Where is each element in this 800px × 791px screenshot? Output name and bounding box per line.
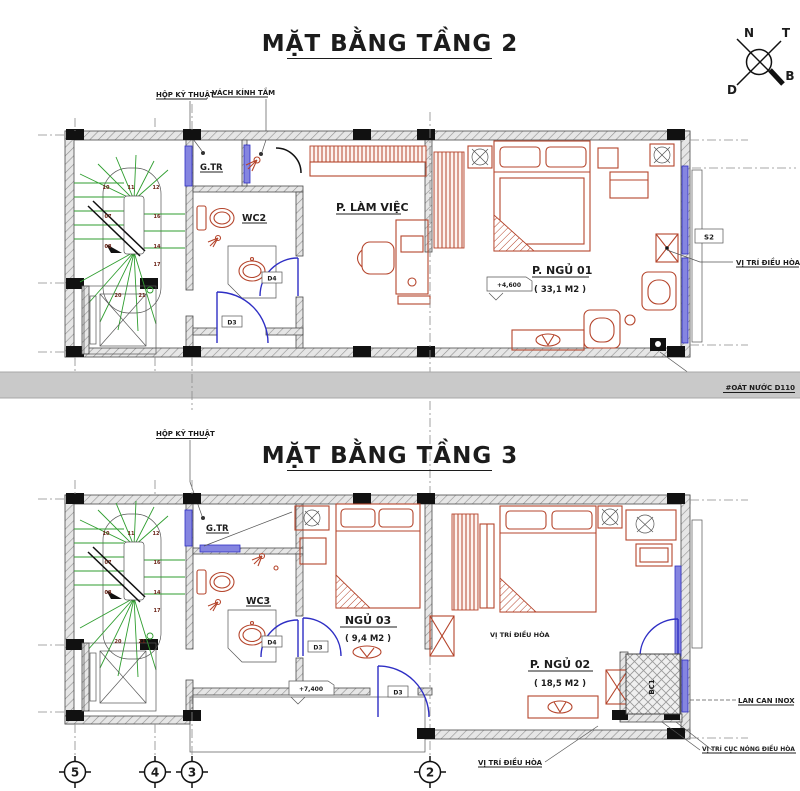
floor3-plan: HỘP KỸ THUẬT MẶT BẰNG TẦNG 3 [38, 357, 796, 767]
compass-b: B [785, 69, 794, 83]
door-label-d3: D3 [227, 320, 236, 327]
compass-n: N [744, 26, 754, 40]
stair-step-number: 11 [128, 531, 135, 537]
floor2-room-lam-viec: P. LÀM VIỆC [336, 201, 409, 214]
railing-label: LAN CAN INOX [738, 697, 795, 705]
stair-step-number: 17 [154, 262, 161, 268]
stair-step-number: 10 [103, 185, 110, 191]
door-label-d3-front: D3 [393, 690, 402, 697]
structural-columns [66, 129, 685, 357]
stair-step-number: 07 [105, 214, 112, 220]
floor2-ac-label: VỊ TRÍ ĐIỀU HÒA [736, 257, 800, 267]
floor2-callout-vach-kinh-tam: VÁCH KÍNH TẮM [212, 87, 275, 97]
door-d3-floor3: D3 [303, 618, 341, 656]
grid-bubble-3: 3 [176, 756, 208, 788]
floor3-level-text: +7,400 [299, 686, 323, 693]
section-band: #OÁT NƯỚC D110 [0, 372, 800, 398]
window-gtr-floor3 [185, 510, 192, 546]
floor3-room-ngu02-area: ( 18,5 M2 ) [534, 679, 586, 689]
door-d3-floor2: D3 [217, 292, 268, 343]
balcony-railing-outline [692, 170, 702, 342]
shower-fixture [246, 148, 301, 173]
floor3-ac-outdoor-label: VỊ TRÍ CỤC NÓNG ĐIỀU HÒA [702, 744, 795, 753]
window-wc3 [200, 545, 240, 552]
grid-bubble-label: 5 [71, 766, 79, 780]
grid-bubble-label: 3 [188, 766, 196, 780]
compass-t: T [782, 26, 791, 40]
floor2-level-text: +4,600 [497, 282, 521, 289]
compass-d: D [727, 83, 737, 97]
balcony-bc1: BC1 [626, 654, 680, 714]
stair-step-number: 07 [105, 560, 112, 566]
stair-step-number: 08 [105, 244, 112, 250]
grid-bubble-label: 2 [426, 766, 434, 780]
stair-step-number: 11 [128, 185, 135, 191]
floor2-room-ngu01-area: ( 33,1 M2 ) [534, 285, 586, 295]
balcony-tag: BC1 [648, 679, 656, 694]
window-gtr [185, 146, 192, 186]
stair-step-number: 20 [115, 639, 122, 645]
compass-icon: N T D B [727, 26, 795, 97]
window-right-lower [682, 258, 688, 343]
stair-step-number: 12 [153, 531, 160, 537]
blueprint-canvas: MẶT BẰNG TẦNG 2 HỘP KỸ THUẬT VÁCH KÍNH T… [0, 0, 800, 791]
stair-step-number: 08 [105, 590, 112, 596]
floor2-room-ngu01: P. NGỦ 01 [532, 263, 592, 277]
floor3-ac-label-mid: VỊ TRÍ ĐIỀU HÒA [490, 629, 550, 639]
floor3-room-gtr: G.TR [206, 524, 229, 534]
floor3-room-ngu03: NGỦ 03 [345, 613, 391, 627]
window-right-upper [682, 166, 688, 254]
stair-step-number: 20 [115, 293, 122, 299]
grid-bubble-4: 4 [139, 756, 171, 788]
floor2-callout-hop-ky-thuat: HỘP KỸ THUẬT [156, 90, 215, 99]
bedroom1-furniture [468, 141, 676, 350]
door-balcony [640, 619, 678, 657]
stair-step-number: 12 [153, 185, 160, 191]
grid-bubbles: 5 4 3 2 [59, 756, 446, 788]
floor3-room-ngu03-area: ( 9,4 M2 ) [345, 634, 391, 644]
grid-bubble-label: 4 [151, 766, 159, 780]
stair-step-number: 17 [154, 608, 161, 614]
terrace-outline [190, 697, 425, 752]
floor3-room-wc3: WC3 [246, 596, 270, 607]
stair-step-number: 16 [154, 560, 161, 566]
stair-step-number: 14 [154, 590, 161, 596]
railing-outline-floor3 [692, 520, 702, 648]
stair-step-number: 16 [154, 214, 161, 220]
level-marker-floor3: +7,400 [289, 681, 334, 704]
grid-bubble-2: 2 [414, 756, 446, 788]
stair-step-number: 21 [139, 293, 146, 299]
stair-step-number: 21 [139, 639, 146, 645]
window-tag-s2: S2 [704, 234, 714, 242]
drain-label: #OÁT NƯỚC D110 [725, 383, 795, 392]
work-room-furniture [310, 146, 464, 304]
floor2-title: MẶT BẰNG TẦNG 2 [262, 26, 518, 57]
grid-bubble-5: 5 [59, 756, 91, 788]
stair-step-number: 14 [154, 244, 161, 250]
floor3-ac-label-bottom: VỊ TRÍ ĐIỀU HÒA [478, 757, 543, 767]
floorplan-drawing: MẶT BẰNG TẦNG 2 HỘP KỸ THUẬT VÁCH KÍNH T… [0, 0, 800, 791]
window-balcony [682, 660, 688, 712]
door-label-d4: D4 [267, 276, 276, 283]
floor3-callout-hop-ky-thuat: HỘP KỸ THUẬT [156, 429, 215, 438]
door-label-d4-floor3: D4 [267, 640, 276, 647]
floor3-title: MẶT BẰNG TẦNG 3 [262, 438, 518, 469]
floor3-room-ngu02: P. NGỦ 02 [530, 657, 590, 671]
level-marker-floor2: +4,600 [487, 277, 532, 300]
stair-step-number: 10 [103, 531, 110, 537]
door-label-d3-floor3: D3 [313, 645, 322, 652]
floor2-room-wc2: WC2 [242, 213, 266, 224]
floor2-room-gtr: G.TR [200, 163, 223, 173]
